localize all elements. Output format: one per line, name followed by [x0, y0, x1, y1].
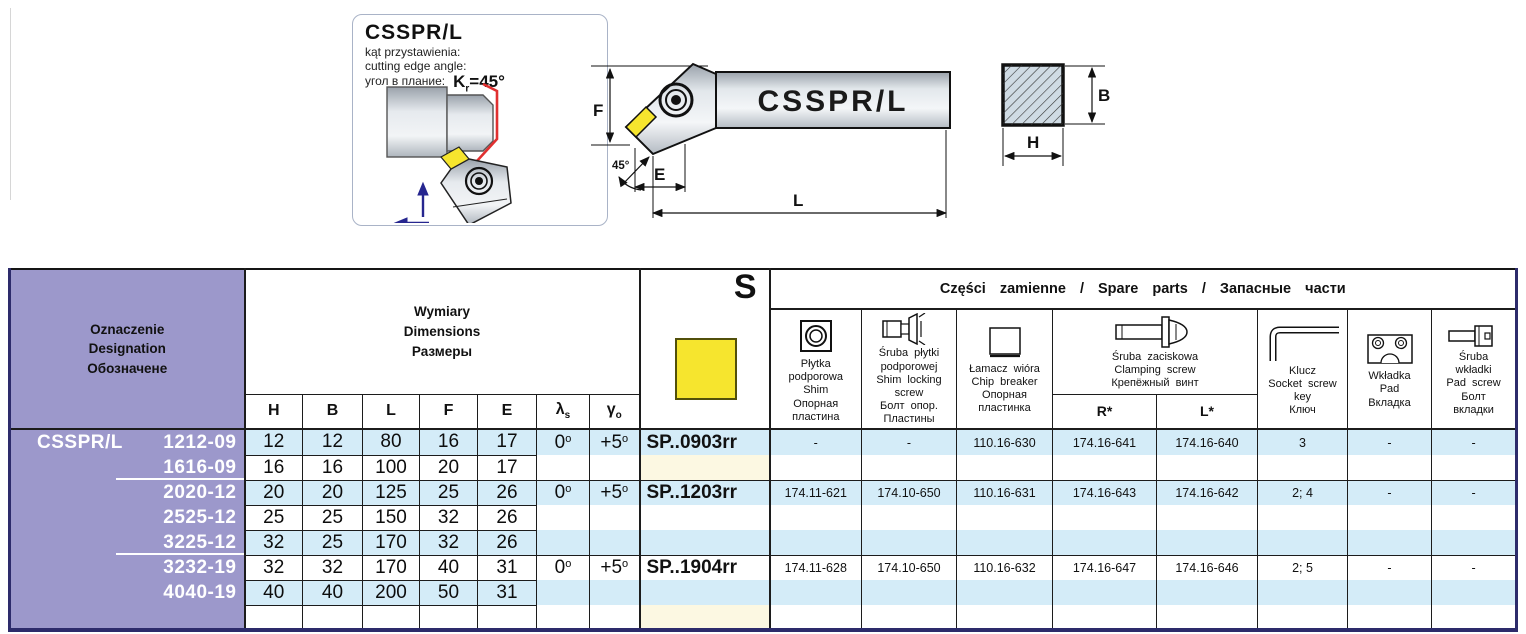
- designation-cell: [10, 605, 245, 630]
- dim-cell: 200: [363, 580, 420, 605]
- col-header-e: E: [478, 394, 537, 429]
- dim-cell: 40: [303, 580, 363, 605]
- dim-label-e: E: [654, 165, 665, 184]
- spare-cell: [1348, 605, 1432, 630]
- catalog-page: CSSPR/L kąt przystawienia: cutting edge …: [0, 0, 1526, 634]
- shank-designation-text: CSSPR/L: [757, 85, 908, 118]
- table-row: 4040-19 40 40 200 50 31: [10, 580, 1517, 605]
- dimensions-table: Oznaczenie Designation Обозначене Wymiar…: [8, 268, 1518, 632]
- spare-cell: 174.11-628: [770, 555, 862, 580]
- spare-cell: [770, 605, 862, 630]
- spare-cell: -: [1432, 480, 1517, 505]
- spare-cell: -: [1348, 429, 1432, 455]
- dim-cell: 150: [363, 505, 420, 530]
- spare-cell: 174.16-647: [1053, 555, 1157, 580]
- angle-cell: [537, 455, 590, 480]
- clamping-screw-icon: [1110, 315, 1200, 349]
- spare-cell: [1157, 505, 1258, 530]
- col-header-h: H: [245, 394, 303, 429]
- spare-cell: -: [1432, 555, 1517, 580]
- spare-cell: 174.16-642: [1157, 480, 1258, 505]
- feed-direction-arrows: [395, 183, 429, 223]
- spare-cell: [1258, 505, 1348, 530]
- dim-cell: 17: [478, 455, 537, 480]
- table-row: 3225-12 32 25 170 32 26: [10, 530, 1517, 555]
- angle-cell: [537, 530, 590, 555]
- spare-cell: 2; 5: [1258, 555, 1348, 580]
- spare-cell: [1432, 605, 1517, 630]
- dim-cell: 20: [303, 480, 363, 505]
- table-row: Oznaczenie Designation Обозначене Wymiar…: [10, 269, 1517, 309]
- dim-cell: 20: [245, 480, 303, 505]
- col-header-clamp-l: L*: [1157, 394, 1258, 429]
- dim-cell: 25: [303, 505, 363, 530]
- spare-cell: [770, 505, 862, 530]
- dim-cell: 31: [478, 580, 537, 605]
- spare-cell: [957, 455, 1053, 480]
- insert-code-cell: [640, 605, 770, 630]
- spare-cell: [957, 605, 1053, 630]
- pad-screw-icon: [1446, 323, 1502, 349]
- dim-cell: 100: [363, 455, 420, 480]
- spare-cell: [957, 580, 1053, 605]
- dim-cell: 40: [245, 580, 303, 605]
- dim-cell: 17: [478, 429, 537, 455]
- table-row: [10, 605, 1517, 630]
- spare-cell: 174.16-640: [1157, 429, 1258, 455]
- spare-cell: -: [1432, 429, 1517, 455]
- spare-cell: [770, 580, 862, 605]
- square-insert-icon: [675, 338, 737, 400]
- spare-cell: [1348, 505, 1432, 530]
- dim-cell: 32: [245, 530, 303, 555]
- shim-header-cell: Płytkapodporowa ShimОпорная пластина: [770, 309, 862, 429]
- designation-cell: CSSPR/L1212-09: [10, 429, 245, 455]
- spare-cell: 110.16-630: [957, 429, 1053, 455]
- angle-cell: [590, 605, 640, 630]
- angle-cell: 0o: [537, 429, 590, 455]
- spare-cell: [1432, 530, 1517, 555]
- angle-label-pl: kąt przystawienia:: [365, 45, 597, 59]
- angle-cell: [590, 530, 640, 555]
- spare-cell: [862, 580, 957, 605]
- spare-cell: -: [770, 429, 862, 455]
- dim-cell: 32: [420, 530, 478, 555]
- dim-cell: 170: [363, 555, 420, 580]
- dim-cell: [478, 605, 537, 630]
- pad-header-cell: WkładkaPad Вкладка: [1348, 309, 1432, 429]
- col-header-f: F: [420, 394, 478, 429]
- insert-shape-letter: S: [734, 270, 757, 304]
- insert-code-cell: SP..1203rr: [640, 480, 770, 505]
- key-header-cell: KluczSocket screw keyКлюч: [1258, 309, 1348, 429]
- spare-cell: [1053, 505, 1157, 530]
- designation-cell: 3232-19: [10, 555, 245, 580]
- dim-cell: 32: [245, 555, 303, 580]
- dim-label-h: H: [1027, 133, 1039, 152]
- insert-code-cell: SP..1904rr: [640, 555, 770, 580]
- dim-label-b: B: [1098, 86, 1110, 105]
- dim-cell: 20: [420, 455, 478, 480]
- dim-cell: 25: [245, 505, 303, 530]
- dim-cell: 125: [363, 480, 420, 505]
- table-row: 1616-09 16 16 100 20 17: [10, 455, 1517, 480]
- angle-cell: 0o: [537, 480, 590, 505]
- dim-cell: 50: [420, 580, 478, 605]
- spare-cell: [1348, 530, 1432, 555]
- insert-code-cell: [640, 505, 770, 530]
- spare-cell: [1157, 455, 1258, 480]
- table-row: 2020-12 20 20 125 25 26 0o +5o SP..1203r…: [10, 480, 1517, 505]
- angle-cell: [590, 580, 640, 605]
- shim-screw-header-cell: Śruba płytkipodporowej Shim lockingscrew…: [862, 309, 957, 429]
- spare-cell: [862, 505, 957, 530]
- angle-arc: [619, 177, 641, 190]
- angle-cell: +5o: [590, 429, 640, 455]
- dim-cell: 16: [245, 455, 303, 480]
- dim-cell: 32: [420, 505, 478, 530]
- dimensions-header-cell: Wymiary Dimensions Размеры: [245, 269, 640, 394]
- col-header-gamma: γo: [590, 394, 640, 429]
- workpiece-step: [447, 95, 493, 151]
- spare-cell: [1432, 580, 1517, 605]
- dim-cell: 26: [478, 505, 537, 530]
- spare-cell: [770, 530, 862, 555]
- insert-code-cell: [640, 580, 770, 605]
- spare-cell: [1053, 530, 1157, 555]
- insert-code-cell: [640, 455, 770, 480]
- workpiece-body: [387, 87, 447, 157]
- dim-cell: 31: [478, 555, 537, 580]
- pad-icon: [1365, 330, 1415, 368]
- spare-cell: [1258, 580, 1348, 605]
- spare-cell: [1432, 505, 1517, 530]
- table-row: CSSPR/L1212-09 12 12 80 16 17 0o +5o SP.…: [10, 429, 1517, 455]
- spare-cell: [1053, 605, 1157, 630]
- designation-cell: 1616-09: [10, 455, 245, 480]
- angle-cell: [537, 505, 590, 530]
- spare-cell: [1258, 530, 1348, 555]
- tool-family-title: CSSPR/L: [365, 21, 597, 45]
- spare-cell: 174.16-641: [1053, 429, 1157, 455]
- dim-cell: 170: [363, 530, 420, 555]
- spare-cell: [1053, 580, 1157, 605]
- dim-cell: [303, 605, 363, 630]
- angle-cell: [590, 505, 640, 530]
- insert-shape-header-cell: S: [640, 269, 770, 429]
- designation-header-cell: Oznaczenie Designation Обозначене: [10, 269, 245, 429]
- spare-cell: [1348, 580, 1432, 605]
- shim-icon: [796, 316, 836, 356]
- spare-cell: [1432, 455, 1517, 480]
- table-row: 2525-12 25 25 150 32 26: [10, 505, 1517, 530]
- spare-cell: [1157, 580, 1258, 605]
- spare-cell: [862, 530, 957, 555]
- spare-cell: [1258, 605, 1348, 630]
- chip-breaker-icon: [984, 325, 1026, 361]
- spare-cell: 110.16-632: [957, 555, 1053, 580]
- dim-cell: 26: [478, 480, 537, 505]
- machining-operation-drawing: [357, 79, 605, 223]
- insert-code-cell: [640, 530, 770, 555]
- spare-cell: [862, 605, 957, 630]
- tool-info-box: CSSPR/L kąt przystawienia: cutting edge …: [352, 14, 608, 226]
- spare-cell: 174.10-650: [862, 480, 957, 505]
- dim-cell: 16: [303, 455, 363, 480]
- spare-cell: 174.16-643: [1053, 480, 1157, 505]
- spare-cell: 110.16-631: [957, 480, 1053, 505]
- designation-cell: 3225-12: [10, 530, 245, 555]
- dim-cell: [245, 605, 303, 630]
- angle-cell: 0o: [537, 555, 590, 580]
- insert-code-cell: SP..0903rr: [640, 429, 770, 455]
- angle-cell: [537, 605, 590, 630]
- dim-cell: 12: [303, 429, 363, 455]
- spare-cell: -: [1348, 480, 1432, 505]
- col-header-lambda: λs: [537, 394, 590, 429]
- dim-cell: 12: [245, 429, 303, 455]
- dim-cell: 25: [303, 530, 363, 555]
- dim-cell: 25: [420, 480, 478, 505]
- angle-cell: +5o: [590, 555, 640, 580]
- socket-key-icon: [1263, 323, 1343, 363]
- dim-cell: 16: [420, 429, 478, 455]
- designation-cell: 4040-19: [10, 580, 245, 605]
- designation-cell: 2020-12: [10, 480, 245, 505]
- spare-cell: -: [1348, 555, 1432, 580]
- spare-cell: [957, 530, 1053, 555]
- spare-cell: 174.16-646: [1157, 555, 1258, 580]
- clamping-screw-header-cell: Śruba zaciskowaClamping screw Крепёжный …: [1053, 309, 1258, 394]
- page-edge-line: [10, 8, 11, 200]
- shank-cross-section-drawing: B H: [985, 42, 1120, 182]
- pad-screw-header-cell: Śrubawkładki Pad screwБолт вкладки: [1432, 309, 1517, 429]
- spare-cell: [862, 455, 957, 480]
- angle-cell: +5o: [590, 480, 640, 505]
- dim-cell: 26: [478, 530, 537, 555]
- table-row: 3232-19 32 32 170 40 31 0o +5o SP..1904r…: [10, 555, 1517, 580]
- spare-cell: [1258, 455, 1348, 480]
- col-header-clamp-r: R*: [1053, 394, 1157, 429]
- hatch-fill: [1003, 65, 1063, 125]
- spare-cell: 174.11-621: [770, 480, 862, 505]
- col-header-l: L: [363, 394, 420, 429]
- spare-cell: 3: [1258, 429, 1348, 455]
- designation-cell: 2525-12: [10, 505, 245, 530]
- spare-cell: [957, 505, 1053, 530]
- dim-label-l: L: [793, 191, 803, 210]
- spare-cell: [1157, 530, 1258, 555]
- spare-cell: [1157, 605, 1258, 630]
- dim-cell: [420, 605, 478, 630]
- chip-breaker-header-cell: Łamacz wióraChip breaker Опорнаяпластинк…: [957, 309, 1053, 429]
- dim-label-f: F: [593, 101, 603, 120]
- spare-cell: -: [862, 429, 957, 455]
- col-header-b: B: [303, 394, 363, 429]
- dim-cell: [363, 605, 420, 630]
- dim-cell: 32: [303, 555, 363, 580]
- spare-cell: [1348, 455, 1432, 480]
- angle-cell: [590, 455, 640, 480]
- dim-cell: 40: [420, 555, 478, 580]
- spare-cell: [1053, 455, 1157, 480]
- spare-cell: 2; 4: [1258, 480, 1348, 505]
- angle-cell: [537, 580, 590, 605]
- spare-cell: [770, 455, 862, 480]
- shim-screw-icon: [881, 313, 937, 345]
- angle-label: 45°: [612, 160, 630, 172]
- spare-cell: 174.10-650: [862, 555, 957, 580]
- dim-cell: 80: [363, 429, 420, 455]
- toolholder-side-view-drawing: CSSPR/L F E L 45°: [588, 38, 988, 243]
- spare-parts-title-cell: Części zamienne / Spare parts / Запасные…: [770, 269, 1517, 309]
